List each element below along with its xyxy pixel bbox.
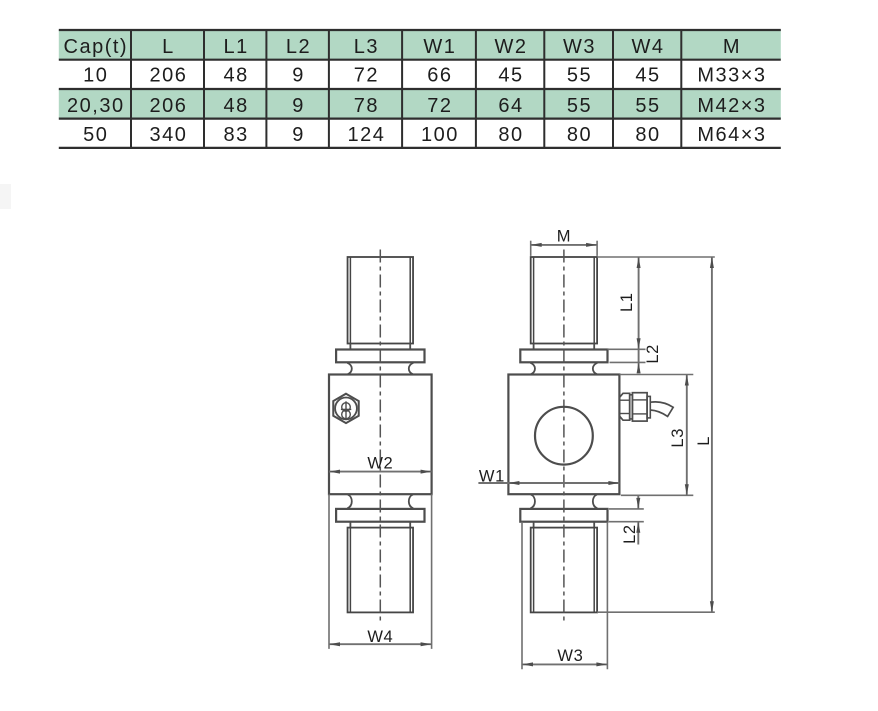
svg-text:L3: L3	[354, 36, 379, 58]
svg-text:M64×3: M64×3	[697, 124, 766, 146]
svg-text:M: M	[557, 227, 571, 245]
svg-text:L2: L2	[644, 344, 662, 364]
svg-text:W1: W1	[423, 36, 456, 58]
svg-text:10: 10	[83, 65, 108, 87]
svg-text:W2: W2	[367, 454, 393, 472]
svg-text:W3: W3	[557, 647, 583, 665]
svg-text:124: 124	[347, 124, 385, 146]
svg-text:55: 55	[567, 65, 592, 87]
svg-text:L3: L3	[669, 428, 687, 448]
svg-text:20,30: 20,30	[67, 95, 125, 117]
svg-text:W1: W1	[479, 468, 505, 486]
svg-text:Cap(t): Cap(t)	[64, 36, 129, 58]
svg-text:78: 78	[354, 95, 379, 117]
svg-text:100: 100	[421, 124, 459, 146]
svg-text:M33×3: M33×3	[697, 65, 766, 87]
svg-text:64: 64	[498, 95, 523, 117]
svg-text:48: 48	[223, 95, 248, 117]
svg-text:66: 66	[427, 65, 452, 87]
svg-text:9: 9	[292, 95, 305, 117]
svg-text:80: 80	[567, 124, 592, 146]
svg-text:83: 83	[223, 124, 248, 146]
svg-text:L1: L1	[223, 36, 248, 58]
svg-text:80: 80	[635, 124, 660, 146]
svg-text:L: L	[162, 36, 175, 58]
svg-text:340: 340	[149, 124, 187, 146]
svg-text:M: M	[723, 36, 741, 58]
svg-text:L: L	[695, 436, 713, 446]
svg-text:72: 72	[354, 65, 379, 87]
svg-text:W3: W3	[563, 36, 596, 58]
svg-text:W2: W2	[495, 36, 528, 58]
svg-text:55: 55	[635, 95, 660, 117]
svg-text:80: 80	[498, 124, 523, 146]
svg-text:55: 55	[567, 95, 592, 117]
svg-text:M42×3: M42×3	[697, 95, 766, 117]
svg-text:50: 50	[83, 124, 108, 146]
svg-text:206: 206	[149, 95, 187, 117]
svg-text:9: 9	[292, 65, 305, 87]
svg-text:L2: L2	[621, 524, 639, 544]
svg-text:45: 45	[635, 65, 660, 87]
svg-text:L1: L1	[618, 292, 636, 312]
svg-text:206: 206	[149, 65, 187, 87]
svg-text:L2: L2	[286, 36, 311, 58]
svg-text:48: 48	[223, 65, 248, 87]
svg-text:72: 72	[427, 95, 452, 117]
svg-text:9: 9	[292, 124, 305, 146]
svg-text:W4: W4	[367, 628, 393, 646]
svg-text:W4: W4	[632, 36, 665, 58]
svg-text:45: 45	[498, 65, 523, 87]
